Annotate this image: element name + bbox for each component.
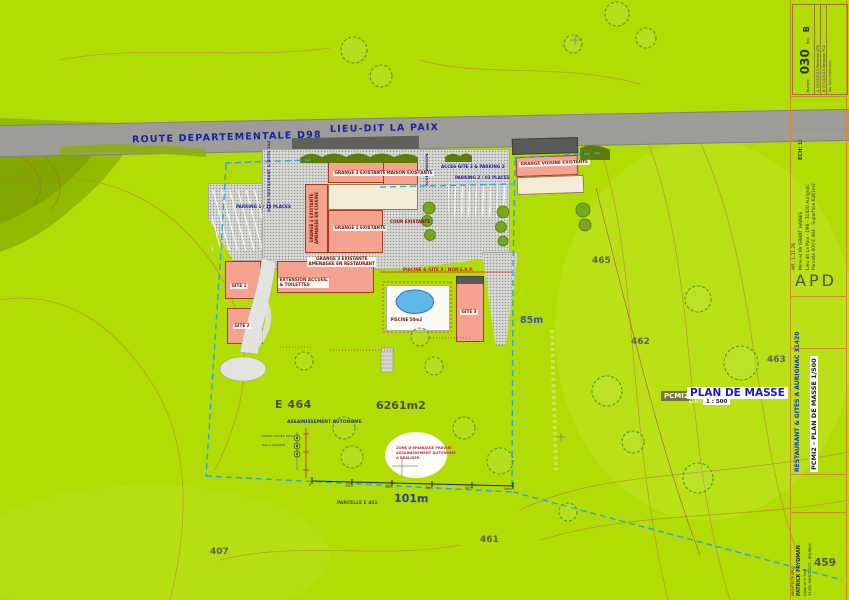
aff-ref: Aff.: 1.31.76 xyxy=(792,158,799,270)
drawing-number-row: Numero 030 Rév. B xyxy=(793,5,814,94)
turnaround-area xyxy=(220,357,266,381)
client-name: Mme et Mr GRANT HAINES xyxy=(799,158,806,270)
cour-label: COUR EXISTANTE xyxy=(390,220,430,225)
tree-icon xyxy=(453,417,475,439)
revision-header: Rév. Date Modification xyxy=(826,5,832,94)
pool-note-label: PISCINE & GITE 3 : NON E.R.P. xyxy=(403,268,473,273)
epandage-note: ZONE D'EPANDAGE PREVUE ASSAINISSEMENT AU… xyxy=(396,446,456,461)
extension-label: EXTENSION ACCUEIL & TOILETTES xyxy=(278,278,329,288)
ech-label: ECH: 1/ xyxy=(798,132,804,160)
maison-label: MAISON EXISTANTE xyxy=(385,171,434,176)
grange4-label: GRANGE 4 EXISTANTE AMENAGEE EN CUISINE xyxy=(309,187,319,249)
parking1-label: PARKING 1 / 15 PLACES xyxy=(236,205,291,210)
phase-apd-label: APD xyxy=(795,272,837,290)
pool-water xyxy=(396,290,434,314)
bac-label: BAC A GRAISSE xyxy=(262,444,285,447)
scale-0: 0 xyxy=(309,484,311,488)
tree-icon xyxy=(636,28,656,48)
revision-block: Numero 030 Rév. B A 19/02/2015 Emission … xyxy=(792,4,848,95)
tree-icon xyxy=(411,328,429,346)
lieu-dit-label: LIEU-DIT LA PAIX xyxy=(330,123,439,136)
project-title: RESTAURANT & GITES A AURIGNAC 31420 xyxy=(794,354,801,472)
parcelle-sud-label: PARCELLE E 461 xyxy=(337,501,378,506)
scale-40m: 40m xyxy=(465,487,473,491)
tree-icon xyxy=(487,448,513,474)
architect-address2: 31430 MONTEGUT - BOURJAC xyxy=(808,514,813,596)
fosse-label: FOSSE TOUTES EAUX xyxy=(262,435,294,438)
tree-icon xyxy=(341,37,367,63)
titleblock-sep xyxy=(790,512,847,513)
dim-101m-label: 101m xyxy=(394,493,429,506)
stairs-icon xyxy=(381,348,393,372)
pool-label: PISCINE 50m2 xyxy=(389,318,424,323)
numero-label: Numero xyxy=(806,79,810,92)
grange2-label: GRANGE 2 EXISTANTE xyxy=(333,171,387,176)
scale-20m: 20m xyxy=(385,486,393,490)
tree-icon xyxy=(685,286,711,312)
access-gite3-label: ACCES GITE 3 & PARKING 2 xyxy=(441,165,505,170)
tree-icon xyxy=(564,35,582,53)
tree-icon xyxy=(622,431,644,453)
architect-block: ARCHITECTE DPLG PATRICK FRYDMAN Camp de … xyxy=(791,514,813,596)
legend-ech-label: Ech : xyxy=(689,400,701,405)
tree-icon xyxy=(683,463,713,493)
tree-icon xyxy=(370,65,392,87)
assainissement-label: ASSAINISSEMENT AUTONOME xyxy=(287,420,362,425)
scale-50m: 50m xyxy=(504,488,512,492)
grange1-label: GRANGE 1 EXISTANTE xyxy=(333,226,387,231)
assainissement-symbols xyxy=(294,432,300,470)
numero-value: 030 xyxy=(798,49,812,74)
parking2-label: PARKING 2 / 03 PLACES xyxy=(455,176,510,181)
tree-icon xyxy=(295,352,313,370)
parcelle-info: Parcelle 000 E 464 - Superficie 6261m2 xyxy=(812,158,819,270)
document-title: PCMI2 - PLAN DE MASSE 1/500 xyxy=(810,356,818,472)
titleblock-sep xyxy=(790,129,847,130)
project-title-block: RESTAURANT & GITES A AURIGNAC 31420 PCMI… xyxy=(794,354,820,472)
parcel-ref-label: E 464 xyxy=(275,399,312,412)
parcel-461-label: 461 xyxy=(480,535,499,545)
gite2-label: GITE 2 xyxy=(233,324,251,329)
annotation-layer xyxy=(0,0,849,600)
parcel-462-label: 462 xyxy=(631,337,650,347)
gite1-label: GITE 1 xyxy=(230,284,248,289)
scale-10m: 10m xyxy=(345,485,353,489)
tree-icon xyxy=(592,376,622,406)
parcel-459-label: 459 xyxy=(814,557,836,569)
scale-bar xyxy=(312,477,513,489)
architect-name: PATRICK FRYDMAN xyxy=(796,514,803,596)
tree-icon xyxy=(425,357,443,375)
project-info-block: Aff.: 1.31.76 Mme et Mr GRANT HAINES Lie… xyxy=(792,158,819,270)
parcel-465-label: 465 xyxy=(592,256,611,266)
legend-scale-value: 1 : 500 xyxy=(703,399,730,405)
titleblock-sep xyxy=(790,474,847,475)
dim-85m-label: 85m xyxy=(520,316,543,327)
tree-icon xyxy=(724,346,758,380)
tree-icon xyxy=(341,446,363,468)
legend-title: PLAN DE MASSE xyxy=(687,387,788,399)
titleblock-sep xyxy=(790,96,847,97)
parcel-area-label: 6261m2 xyxy=(376,400,426,413)
gite3-label: GITE 3 xyxy=(460,310,478,315)
grange3-label: GRANGE 3 EXISTANTE AMENAGEE EN RESTAURAN… xyxy=(307,257,376,267)
scale-30m: 30m xyxy=(425,487,433,491)
site-plan-canvas: ROUTE DEPARTEMENTALE D98 LIEU-DIT LA PAI… xyxy=(0,0,849,600)
tree-icon xyxy=(559,503,577,521)
tree-icon xyxy=(605,2,629,26)
rev-value: B xyxy=(802,26,811,32)
parcel-463-label: 463 xyxy=(767,355,786,365)
titleblock-sep xyxy=(790,296,847,297)
titleblock-border-left xyxy=(790,0,791,600)
rev-label: Rév. xyxy=(806,37,810,44)
parcel-407-label: 407 xyxy=(210,547,229,557)
bushes xyxy=(422,202,592,246)
